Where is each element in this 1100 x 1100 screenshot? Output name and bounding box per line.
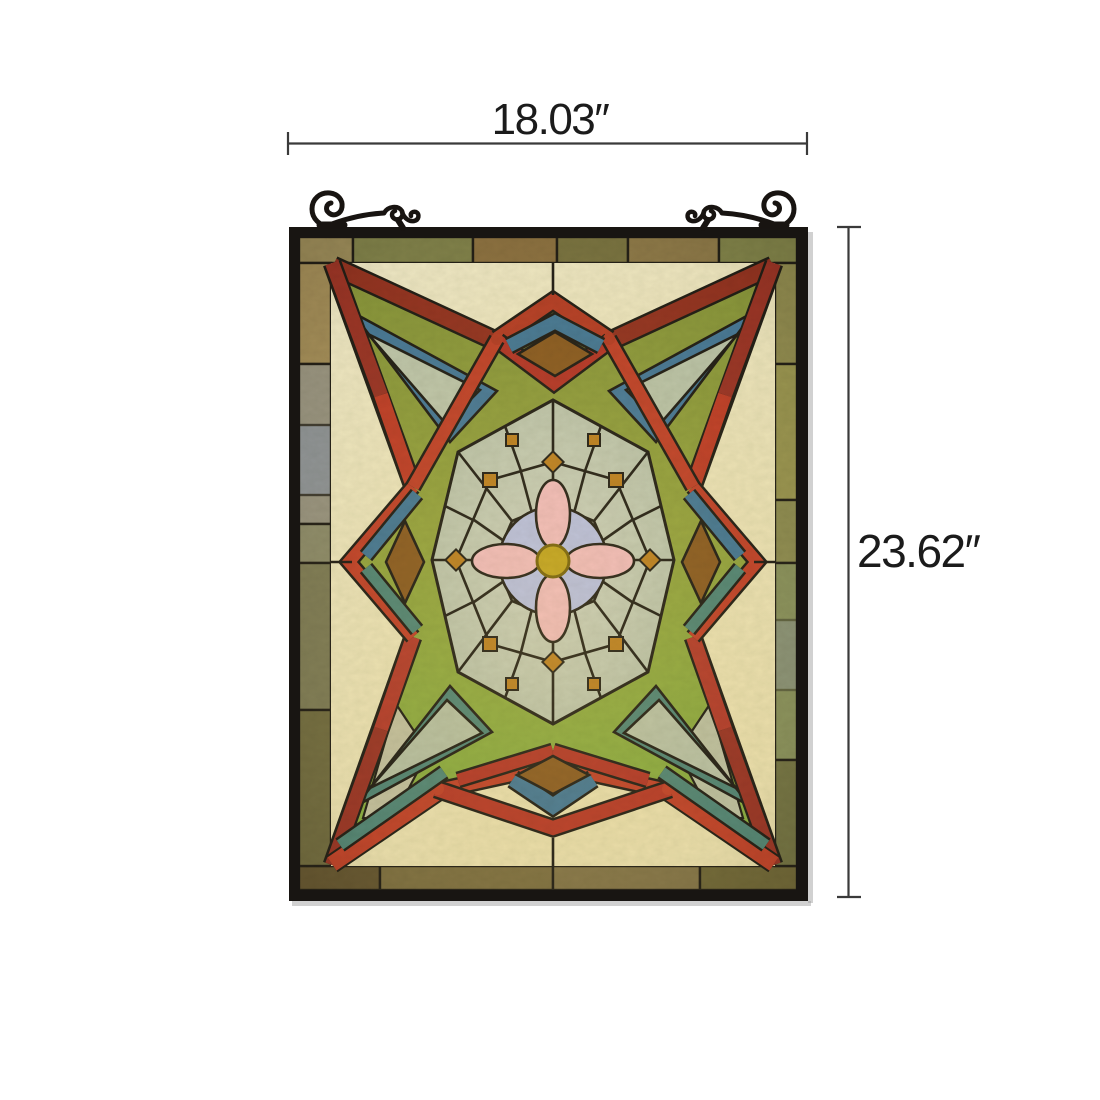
svg-text:18.03″: 18.03″ <box>492 95 610 144</box>
svg-text:23.62″: 23.62″ <box>857 525 981 577</box>
